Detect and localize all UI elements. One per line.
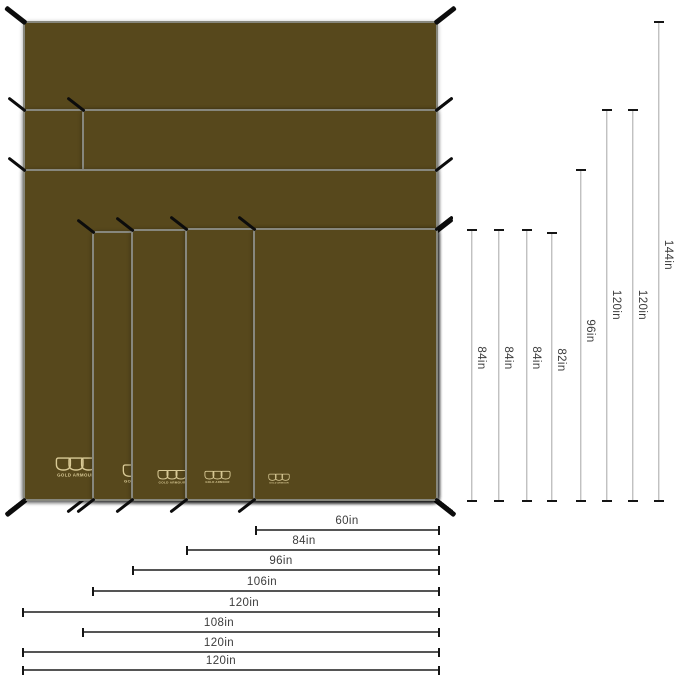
width-dim-6: 108in <box>82 619 440 639</box>
corner-tie-icon <box>7 497 26 513</box>
crown-icon: GOLD ARMOUR <box>157 469 187 485</box>
dim-tick <box>654 500 664 502</box>
width-dim-label: 120in <box>229 597 259 609</box>
width-dim-4: 106in <box>92 578 440 598</box>
width-dim-label: 108in <box>204 617 234 629</box>
dim-line <box>526 230 527 501</box>
dim-line <box>133 569 439 570</box>
dim-line <box>23 669 439 670</box>
width-dim-label: 96in <box>269 555 292 567</box>
dim-tick <box>438 587 440 596</box>
dim-line <box>551 233 552 501</box>
crown-icon: GOLD ARMOUR <box>55 456 97 478</box>
height-dim-6: 120in <box>602 109 612 502</box>
dim-tick <box>438 566 440 575</box>
height-dim-label: 84in <box>530 346 542 369</box>
tarp-60x84: GOLD ARMOUR <box>253 228 438 501</box>
height-dim-label: 144in <box>662 240 674 270</box>
dim-tick <box>22 648 24 657</box>
dim-tick <box>494 229 504 231</box>
dim-line <box>606 110 607 501</box>
height-dim-label: 84in <box>475 346 487 369</box>
height-dim-label: 82in <box>555 348 567 371</box>
dim-tick <box>576 500 586 502</box>
height-dim-2: 84in <box>494 229 504 502</box>
corner-tie-icon <box>4 5 27 25</box>
dim-tick <box>22 608 24 617</box>
dim-tick <box>547 232 557 234</box>
dim-tick <box>438 608 440 617</box>
height-dim-1: 84in <box>467 229 477 502</box>
dim-line <box>498 230 499 501</box>
dim-tick <box>186 546 188 555</box>
brand-name: GOLD ARMOUR <box>269 481 289 484</box>
tarp-size-diagram: GOLD ARMOUR GOLD ARMOUR GOLD <box>0 0 679 677</box>
width-dim-1: 60in <box>255 517 440 537</box>
dim-tick <box>438 546 440 555</box>
dim-tick <box>628 500 638 502</box>
dim-tick <box>22 666 24 675</box>
brand-logo: GOLD ARMOUR <box>55 456 97 478</box>
dim-line <box>93 590 439 591</box>
dim-tick <box>467 229 477 231</box>
crown-icon: GOLD ARMOUR <box>204 470 231 484</box>
dim-line <box>23 611 439 612</box>
dim-line <box>580 170 581 501</box>
dim-tick <box>438 526 440 535</box>
height-dim-7: 120in <box>628 109 638 502</box>
height-dim-8: 144in <box>654 21 664 502</box>
width-dim-2: 84in <box>186 537 440 557</box>
height-dim-label: 120in <box>636 290 648 320</box>
dim-line <box>23 651 439 652</box>
dim-tick <box>547 500 557 502</box>
width-dim-label: 120in <box>206 655 236 667</box>
height-dim-5: 96in <box>576 169 586 502</box>
dim-tick <box>654 21 664 23</box>
width-dim-3: 96in <box>132 557 440 577</box>
height-dim-label: 96in <box>584 319 596 342</box>
height-dim-4: 82in <box>547 232 557 502</box>
width-dim-5: 120in <box>22 599 440 619</box>
width-dim-label: 120in <box>204 637 234 649</box>
brand-name: GOLD ARMOUR <box>57 473 95 478</box>
dim-line <box>632 110 633 501</box>
dim-tick <box>576 169 586 171</box>
dim-line <box>658 22 659 501</box>
corner-tie-icon <box>433 5 456 25</box>
width-dim-label: 60in <box>335 515 358 527</box>
brand-logo: GOLD ARMOUR <box>157 469 187 485</box>
dim-tick <box>522 500 532 502</box>
dim-line <box>256 529 439 530</box>
dim-line <box>471 230 472 501</box>
dim-tick <box>132 566 134 575</box>
dim-tick <box>255 526 257 535</box>
dim-tick <box>467 500 477 502</box>
dim-line <box>187 549 439 550</box>
height-dim-3: 84in <box>522 229 532 502</box>
dim-tick <box>494 500 504 502</box>
brand-logo: GOLD ARMOUR <box>268 473 290 484</box>
brand-name: GOLD ARMOUR <box>205 480 229 484</box>
corner-tie-icon <box>434 497 453 513</box>
brand-name: GOLD ARMOUR <box>159 480 187 484</box>
dim-tick <box>438 628 440 637</box>
height-dim-label: 120in <box>610 290 622 320</box>
brand-logo: GOLD ARMOUR <box>204 470 231 484</box>
dim-tick <box>522 229 532 231</box>
dim-tick <box>438 648 440 657</box>
width-dim-label: 106in <box>247 576 277 588</box>
width-dim-8: 120in <box>22 657 440 677</box>
dim-tick <box>628 109 638 111</box>
width-dim-label: 84in <box>292 535 315 547</box>
crown-icon: GOLD ARMOUR <box>268 473 290 484</box>
dim-line <box>83 631 439 632</box>
dim-tick <box>92 587 94 596</box>
dim-tick <box>602 500 612 502</box>
dim-tick <box>438 666 440 675</box>
dim-tick <box>602 109 612 111</box>
dim-tick <box>82 628 84 637</box>
height-dim-label: 84in <box>502 346 514 369</box>
